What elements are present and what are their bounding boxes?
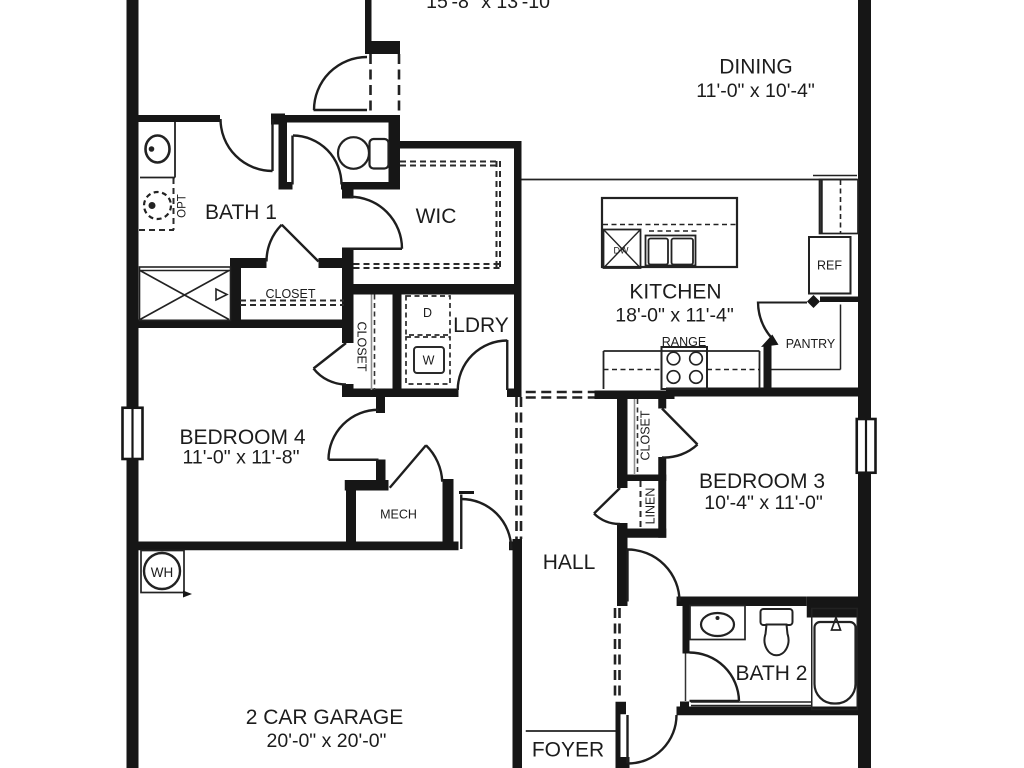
svg-text:11'-0" x 11'-8": 11'-0" x 11'-8" <box>182 447 299 469</box>
svg-text:CLOSET: CLOSET <box>639 410 653 460</box>
svg-text:WIC: WIC <box>416 205 457 228</box>
svg-text:REF: REF <box>817 259 842 273</box>
svg-text:OPT: OPT <box>177 194 189 218</box>
svg-text:BATH 2: BATH 2 <box>736 662 808 685</box>
svg-text:HALL: HALL <box>543 551 596 574</box>
svg-text:MECH: MECH <box>380 508 417 522</box>
svg-text:2 CAR GARAGE: 2 CAR GARAGE <box>246 706 404 729</box>
svg-text:LINEN: LINEN <box>644 488 658 525</box>
svg-text:18'-0" x 11'-4": 18'-0" x 11'-4" <box>615 305 734 327</box>
svg-text:20'-0" x 20'-0": 20'-0" x 20'-0" <box>267 730 387 752</box>
svg-text:WH: WH <box>151 565 174 580</box>
svg-text:KITCHEN: KITCHEN <box>629 281 721 304</box>
svg-text:RANGE: RANGE <box>662 335 706 349</box>
svg-text:LDRY: LDRY <box>453 314 509 337</box>
svg-text:W: W <box>423 354 435 368</box>
svg-text:BATH 1: BATH 1 <box>205 201 277 224</box>
svg-text:15'-8" x 13'-10": 15'-8" x 13'-10" <box>426 0 557 13</box>
svg-text:CLOSET: CLOSET <box>265 287 315 301</box>
svg-text:DINING: DINING <box>719 56 793 79</box>
svg-text:DW: DW <box>614 246 629 256</box>
svg-text:CLOSET: CLOSET <box>355 321 369 371</box>
svg-text:PANTRY: PANTRY <box>786 337 836 351</box>
svg-text:BEDROOM 3: BEDROOM 3 <box>699 470 825 493</box>
svg-text:D: D <box>423 306 432 320</box>
svg-text:10'-4" x 11'-0": 10'-4" x 11'-0" <box>704 492 823 514</box>
svg-text:11'-0" x 10'-4": 11'-0" x 10'-4" <box>696 80 815 102</box>
svg-text:FOYER: FOYER <box>532 739 604 762</box>
